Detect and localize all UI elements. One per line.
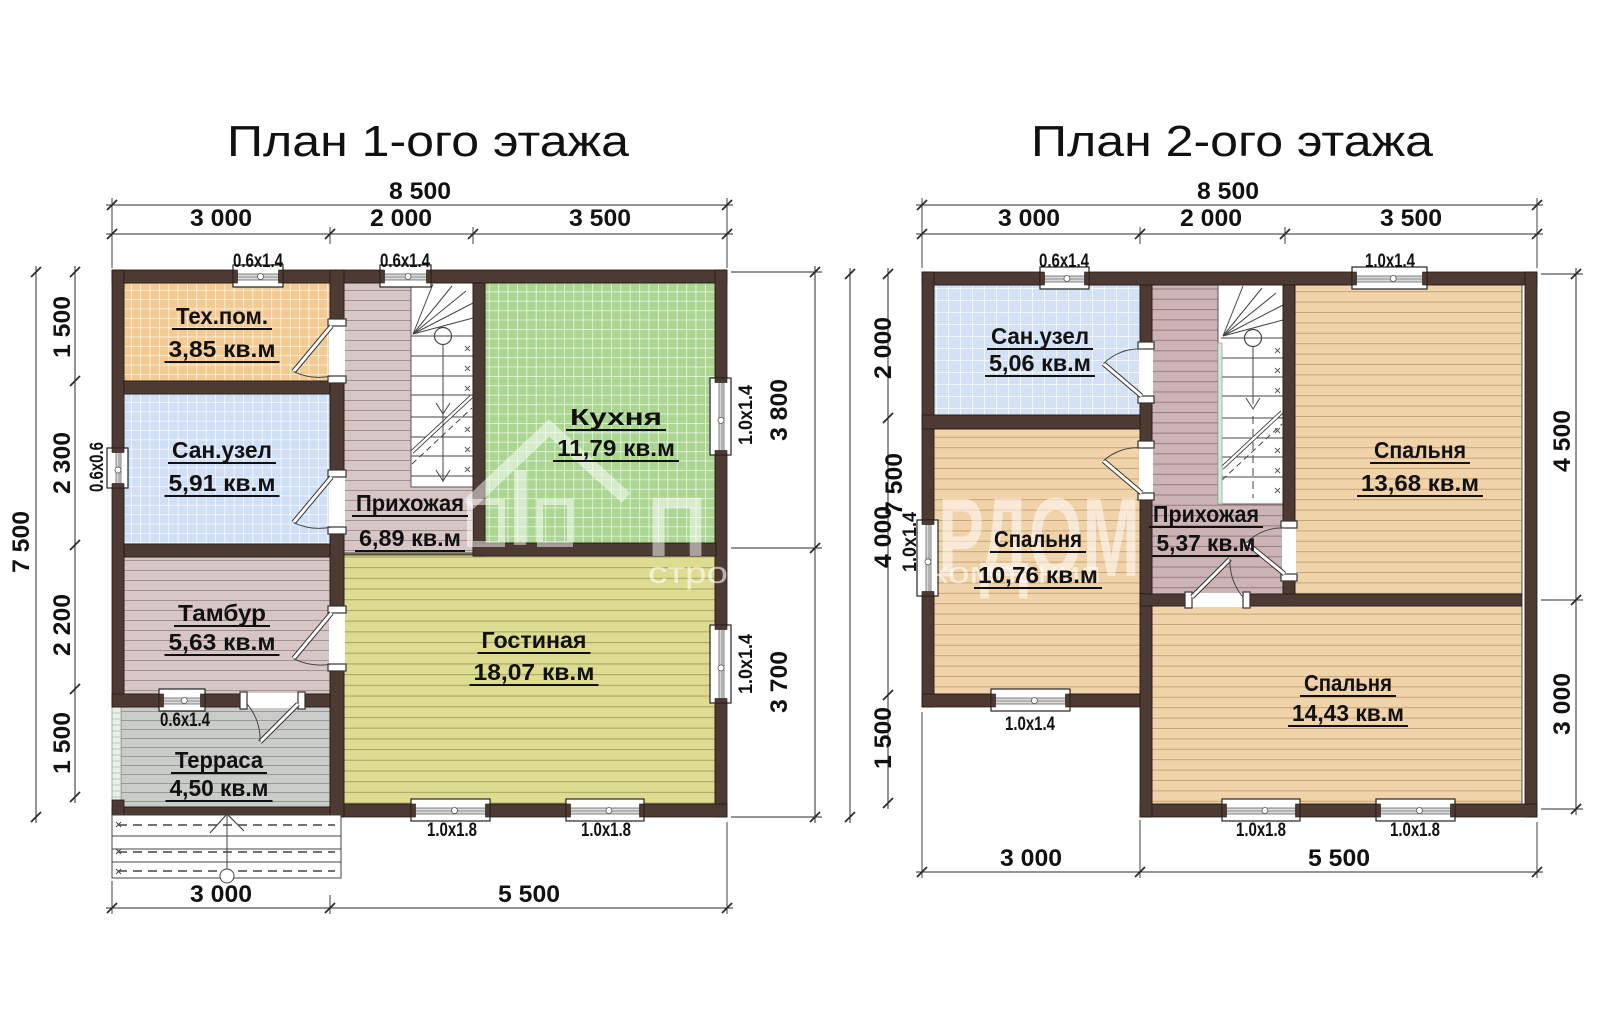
svg-text:7 500: 7 500 xyxy=(881,453,908,515)
svg-text:5,91 кв.м: 5,91 кв.м xyxy=(169,470,276,496)
svg-text:2 000: 2 000 xyxy=(370,205,432,232)
svg-text:8 500: 8 500 xyxy=(389,178,451,205)
svg-text:13,68 кв.м: 13,68 кв.м xyxy=(1361,470,1479,496)
svg-text:1.0x1.4: 1.0x1.4 xyxy=(1005,714,1055,735)
svg-text:Спальня: Спальня xyxy=(1304,670,1392,696)
svg-text:1 500: 1 500 xyxy=(870,707,897,769)
svg-text:Тамбур: Тамбур xyxy=(178,600,266,626)
svg-text:2 300: 2 300 xyxy=(49,432,76,494)
svg-text:1.0x1.8: 1.0x1.8 xyxy=(581,820,631,841)
svg-text:3 000: 3 000 xyxy=(998,205,1060,232)
svg-text:2 000: 2 000 xyxy=(1180,205,1242,232)
svg-text:3 000: 3 000 xyxy=(190,881,252,908)
svg-text:10,76 кв.м: 10,76 кв.м xyxy=(978,562,1098,588)
svg-text:3 000: 3 000 xyxy=(190,205,252,232)
svg-text:Терраса: Терраса xyxy=(175,747,263,773)
svg-text:1.0x1.4: 1.0x1.4 xyxy=(736,385,757,445)
svg-text:3 500: 3 500 xyxy=(1380,205,1442,232)
svg-text:1 500: 1 500 xyxy=(49,296,76,358)
svg-text:1.0x1.8: 1.0x1.8 xyxy=(1236,820,1286,841)
svg-text:6,89 кв.м: 6,89 кв.м xyxy=(359,525,461,551)
svg-text:Спальня: Спальня xyxy=(994,526,1082,552)
svg-text:5,63 кв.м: 5,63 кв.м xyxy=(169,629,276,655)
svg-text:2 200: 2 200 xyxy=(49,594,76,656)
svg-text:5,06 кв.м: 5,06 кв.м xyxy=(989,350,1091,376)
svg-text:1.0x1.8: 1.0x1.8 xyxy=(427,820,477,841)
svg-text:5 500: 5 500 xyxy=(1308,845,1370,872)
svg-text:4,50 кв.м: 4,50 кв.м xyxy=(170,775,269,801)
svg-text:7 500: 7 500 xyxy=(8,511,35,573)
svg-text:3 000: 3 000 xyxy=(1549,673,1576,735)
svg-text:3 800: 3 800 xyxy=(766,379,793,441)
svg-text:4 000: 4 000 xyxy=(870,506,897,568)
svg-text:стро: стро xyxy=(648,555,728,590)
svg-text:Тех.пом.: Тех.пом. xyxy=(176,303,268,329)
svg-text:Кухня: Кухня xyxy=(570,404,662,430)
svg-text:План 1-ого этажа: План 1-ого этажа xyxy=(227,117,630,166)
svg-text:1.0x1.4: 1.0x1.4 xyxy=(1365,251,1415,272)
svg-text:8 500: 8 500 xyxy=(1197,178,1259,205)
svg-text:0.6x1.4: 0.6x1.4 xyxy=(233,251,283,272)
svg-text:Сан.узел: Сан.узел xyxy=(172,437,272,463)
svg-text:Гостиная: Гостиная xyxy=(482,627,587,653)
svg-text:3 700: 3 700 xyxy=(766,651,793,713)
svg-text:0.6x1.4: 0.6x1.4 xyxy=(160,710,210,731)
svg-text:3 000: 3 000 xyxy=(1000,845,1062,872)
svg-text:14,43 кв.м: 14,43 кв.м xyxy=(1292,700,1404,726)
svg-text:0.6x0.6: 0.6x0.6 xyxy=(87,442,108,492)
svg-text:0.6x1.4: 0.6x1.4 xyxy=(1039,251,1089,272)
svg-text:1.0x1.4: 1.0x1.4 xyxy=(736,634,757,694)
svg-text:Сан.узел: Сан.узел xyxy=(991,323,1089,349)
svg-text:0.6x1.4: 0.6x1.4 xyxy=(380,251,430,272)
svg-text:Прихожая: Прихожая xyxy=(356,490,464,516)
svg-text:2 000: 2 000 xyxy=(870,317,897,379)
svg-text:3,85 кв.м: 3,85 кв.м xyxy=(169,336,276,362)
svg-text:1.0x1.8: 1.0x1.8 xyxy=(1390,820,1440,841)
svg-text:11,79 кв.м: 11,79 кв.м xyxy=(557,435,675,461)
svg-text:5,37 кв.м: 5,37 кв.м xyxy=(1157,530,1256,556)
svg-text:4 500: 4 500 xyxy=(1549,410,1576,472)
svg-text:Спальня: Спальня xyxy=(1374,437,1466,463)
svg-text:План 2-ого этажа: План 2-ого этажа xyxy=(1031,117,1434,166)
svg-text:3 500: 3 500 xyxy=(569,205,631,232)
svg-text:5 500: 5 500 xyxy=(498,881,560,908)
svg-text:Прихожая: Прихожая xyxy=(1153,501,1259,527)
svg-text:18,07 кв.м: 18,07 кв.м xyxy=(474,659,595,685)
svg-text:1 500: 1 500 xyxy=(49,712,76,774)
svg-text:1.0x1.4: 1.0x1.4 xyxy=(900,512,921,572)
